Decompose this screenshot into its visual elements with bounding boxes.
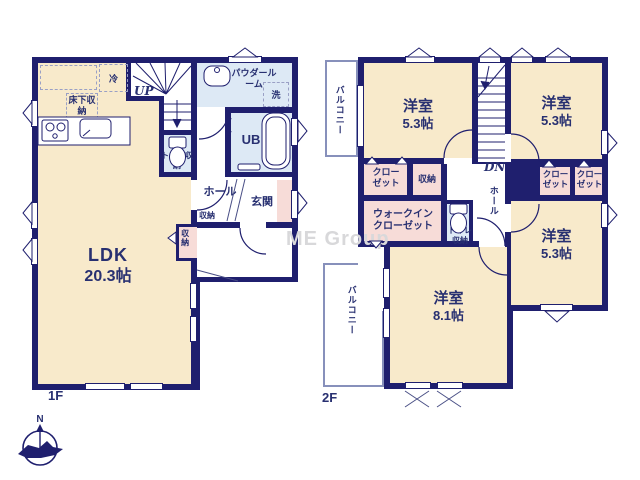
floorplan-linework bbox=[0, 0, 640, 480]
floorplan-canvas: 冷 床下収納 洗 UP パウダールーム UB トイレ収納 ホール 収納 玄関 収… bbox=[0, 0, 640, 480]
genkan-step-lines bbox=[197, 179, 245, 281]
stairs-1f bbox=[133, 63, 191, 127]
toilet-fixtures bbox=[169, 137, 467, 233]
shutter-x-marks bbox=[405, 391, 461, 407]
compass: N bbox=[12, 414, 68, 472]
bathroom-fixtures bbox=[204, 66, 290, 170]
window-chevrons bbox=[23, 48, 617, 322]
compass-north-label: N bbox=[34, 414, 46, 426]
kitchen-fixtures bbox=[38, 117, 130, 145]
stairs-2f bbox=[478, 65, 505, 158]
